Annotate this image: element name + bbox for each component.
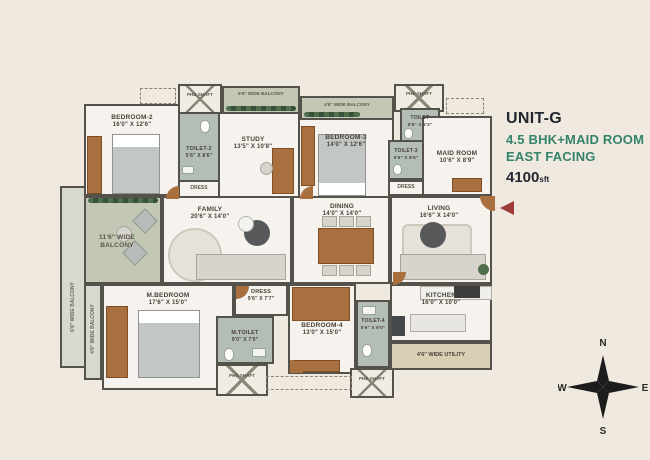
shaft-bottom-right bbox=[350, 368, 394, 398]
room-dims: 13'5" X 10'8" bbox=[220, 144, 286, 152]
bed-icon bbox=[292, 287, 350, 321]
balcony-side-2-label: 4'6" WIDE BALCONY bbox=[90, 287, 96, 371]
master-toilet-label: M.TOILET 9'0" X 7'0" bbox=[220, 330, 270, 344]
room-dims: 5'5" X 4'3" bbox=[400, 122, 440, 128]
chair-icon bbox=[339, 265, 354, 276]
room-name: M.TOILET bbox=[220, 330, 270, 337]
room-name: BEDROOM-2 bbox=[92, 114, 172, 122]
room-name: M.BEDROOM bbox=[118, 292, 218, 300]
study-label: STUDY 13'5" X 10'8" bbox=[220, 136, 286, 152]
shaft-bottom-right-label: PHE SHAFT bbox=[354, 376, 390, 382]
master-dress-label: DRESS 9'6" X 7'7" bbox=[236, 289, 286, 303]
dining-label: DINING 14'0" X 14'0" bbox=[306, 203, 378, 219]
room-name: FAMILY bbox=[172, 206, 248, 214]
area-unit: sft bbox=[539, 175, 549, 184]
wardrobe-icon bbox=[106, 306, 128, 378]
compass-south-label: S bbox=[600, 426, 607, 437]
room-dims: 13'0" X 15'0" bbox=[290, 330, 354, 338]
dining-table-icon bbox=[318, 228, 374, 264]
room-dims: 17'6" X 15'0" bbox=[118, 300, 218, 308]
plants-icon bbox=[88, 198, 158, 203]
room-dims: 14'0" X 12'6" bbox=[302, 142, 390, 150]
bed-icon bbox=[138, 310, 200, 378]
compass-north-label: N bbox=[599, 338, 606, 349]
chair-icon bbox=[322, 265, 337, 276]
shaft-top-left bbox=[178, 84, 222, 114]
shaft-top-left-label: PHE SHAFT bbox=[180, 92, 220, 98]
room-name: DRESS bbox=[236, 289, 286, 296]
utility-label: 4'6" WIDE UTILITY bbox=[398, 352, 484, 359]
compass-east-label: E bbox=[642, 383, 648, 394]
room-name: KITCHEN bbox=[400, 292, 482, 300]
plants-icon bbox=[304, 112, 360, 117]
toilet-3-label: TOILET-3 5'6" X 8'6" bbox=[388, 148, 424, 160]
room-dims: 16'0" X 10'0" bbox=[400, 300, 482, 308]
dashed-ledge-top-left bbox=[140, 88, 176, 104]
room-name: MAID ROOM bbox=[424, 150, 490, 158]
room-name: TOILET-4 bbox=[356, 318, 390, 325]
sink-icon bbox=[252, 348, 266, 357]
bedroom-3-label: BEDROOM-3 14'0" X 12'6" bbox=[302, 134, 390, 150]
compass-west-label: W bbox=[558, 383, 567, 394]
shaft-bottom-left bbox=[216, 364, 268, 396]
coffee-table-icon bbox=[420, 222, 446, 248]
desk-icon bbox=[272, 148, 294, 194]
living-label: LIVING 16'6" X 14'0" bbox=[400, 205, 478, 221]
kitchen-label: KITCHEN 16'0" X 10'0" bbox=[400, 292, 482, 308]
wardrobe-icon bbox=[87, 136, 102, 194]
toilet-icon bbox=[404, 128, 413, 139]
unit-title: UNIT-G bbox=[506, 110, 644, 128]
toilet-icon bbox=[393, 164, 402, 175]
room-name: BEDROOM-4 bbox=[290, 322, 354, 330]
room-dims: 10'6" X 8'9" bbox=[424, 158, 490, 166]
dress-3-label: DRESS bbox=[389, 184, 423, 190]
toilet-icon bbox=[224, 348, 234, 361]
room-dims: 9'0" X 7'0" bbox=[220, 337, 270, 344]
room-dims: 16'6" X 14'0" bbox=[400, 213, 478, 221]
room-dims: 5'6" X 8'6" bbox=[179, 153, 219, 160]
chair-icon bbox=[356, 265, 371, 276]
family-label: FAMILY 20'6" X 14'0" bbox=[172, 206, 248, 222]
room-name: TOILET-2 bbox=[179, 146, 219, 153]
area-value: 4100 bbox=[506, 169, 539, 186]
cot-icon bbox=[452, 178, 482, 192]
unit-area: 4100sft bbox=[506, 169, 644, 186]
dress-2-label: DRESS bbox=[180, 185, 218, 191]
unit-facing: EAST FACING bbox=[506, 149, 644, 164]
balcony-top-2-label: 4'6" WIDE BALCONY bbox=[303, 102, 391, 108]
floor-plan-canvas: PHE SHAFT 6'6" WIDE BALCONY 4'6" WIDE BA… bbox=[0, 0, 650, 460]
island-counter-icon bbox=[410, 314, 466, 332]
bedroom-4-label: BEDROOM-4 13'0" X 15'0" bbox=[290, 322, 354, 338]
room-dims: 20'6" X 14'0" bbox=[172, 214, 248, 222]
dashed-ledge-bottom bbox=[266, 376, 352, 390]
bed-icon bbox=[112, 134, 160, 194]
fridge-icon bbox=[392, 316, 405, 336]
toilet-2-label: TOILET-2 5'6" X 8'6" bbox=[179, 146, 219, 160]
room-name: BEDROOM-3 bbox=[302, 134, 390, 142]
room-dims: 14'0" X 14'0" bbox=[306, 211, 378, 219]
room-name: STUDY bbox=[220, 136, 286, 144]
room-name: LIVING bbox=[400, 205, 478, 213]
room-dims: 5'6" X 9'0" bbox=[356, 325, 390, 331]
chair-icon bbox=[260, 162, 273, 175]
toilet-4-label: TOILET-4 5'6" X 9'0" bbox=[356, 318, 390, 330]
bedroom-2-label: BEDROOM-2 16'0" X 12'6" bbox=[92, 114, 172, 130]
plant-icon bbox=[478, 264, 489, 275]
room-name: DINING bbox=[306, 203, 378, 211]
room-dims: 9'6" X 7'7" bbox=[236, 296, 286, 303]
dashed-ledge-top-right bbox=[446, 98, 484, 114]
compass-rose-icon: N E S W bbox=[558, 332, 648, 447]
toilet-icon bbox=[362, 344, 372, 357]
title-block: UNIT-G 4.5 BHK+MAID ROOM EAST FACING 410… bbox=[506, 110, 644, 186]
sofa-icon bbox=[196, 254, 286, 280]
balcony-left-label: 11'6" WIDE BALCONY bbox=[88, 234, 146, 251]
room-dims: 16'0" X 12'6" bbox=[92, 122, 172, 130]
balcony-top-1-label: 6'6" WIDE BALCONY bbox=[226, 91, 296, 97]
toilet-icon bbox=[200, 120, 210, 133]
toilet-label: TOILET 5'5" X 4'3" bbox=[400, 115, 440, 127]
balcony-side-1-label: 6'6" WIDE BALCONY bbox=[70, 265, 76, 349]
master-bedroom-label: M.BEDROOM 17'6" X 15'0" bbox=[118, 292, 218, 308]
shaft-top-right-label: PHE SHAFT bbox=[398, 91, 440, 97]
sink-icon bbox=[362, 306, 376, 315]
sofa-icon bbox=[400, 254, 486, 280]
entry-arrow-icon bbox=[500, 201, 514, 215]
unit-config: 4.5 BHK+MAID ROOM bbox=[506, 132, 644, 147]
plants-icon bbox=[226, 106, 296, 111]
sink-icon bbox=[182, 166, 194, 174]
room-dims: 5'6" X 8'6" bbox=[388, 155, 424, 161]
maid-room-label: MAID ROOM 10'6" X 8'9" bbox=[424, 150, 490, 166]
shaft-bottom-left-label: PHE SHAFT bbox=[222, 373, 262, 379]
